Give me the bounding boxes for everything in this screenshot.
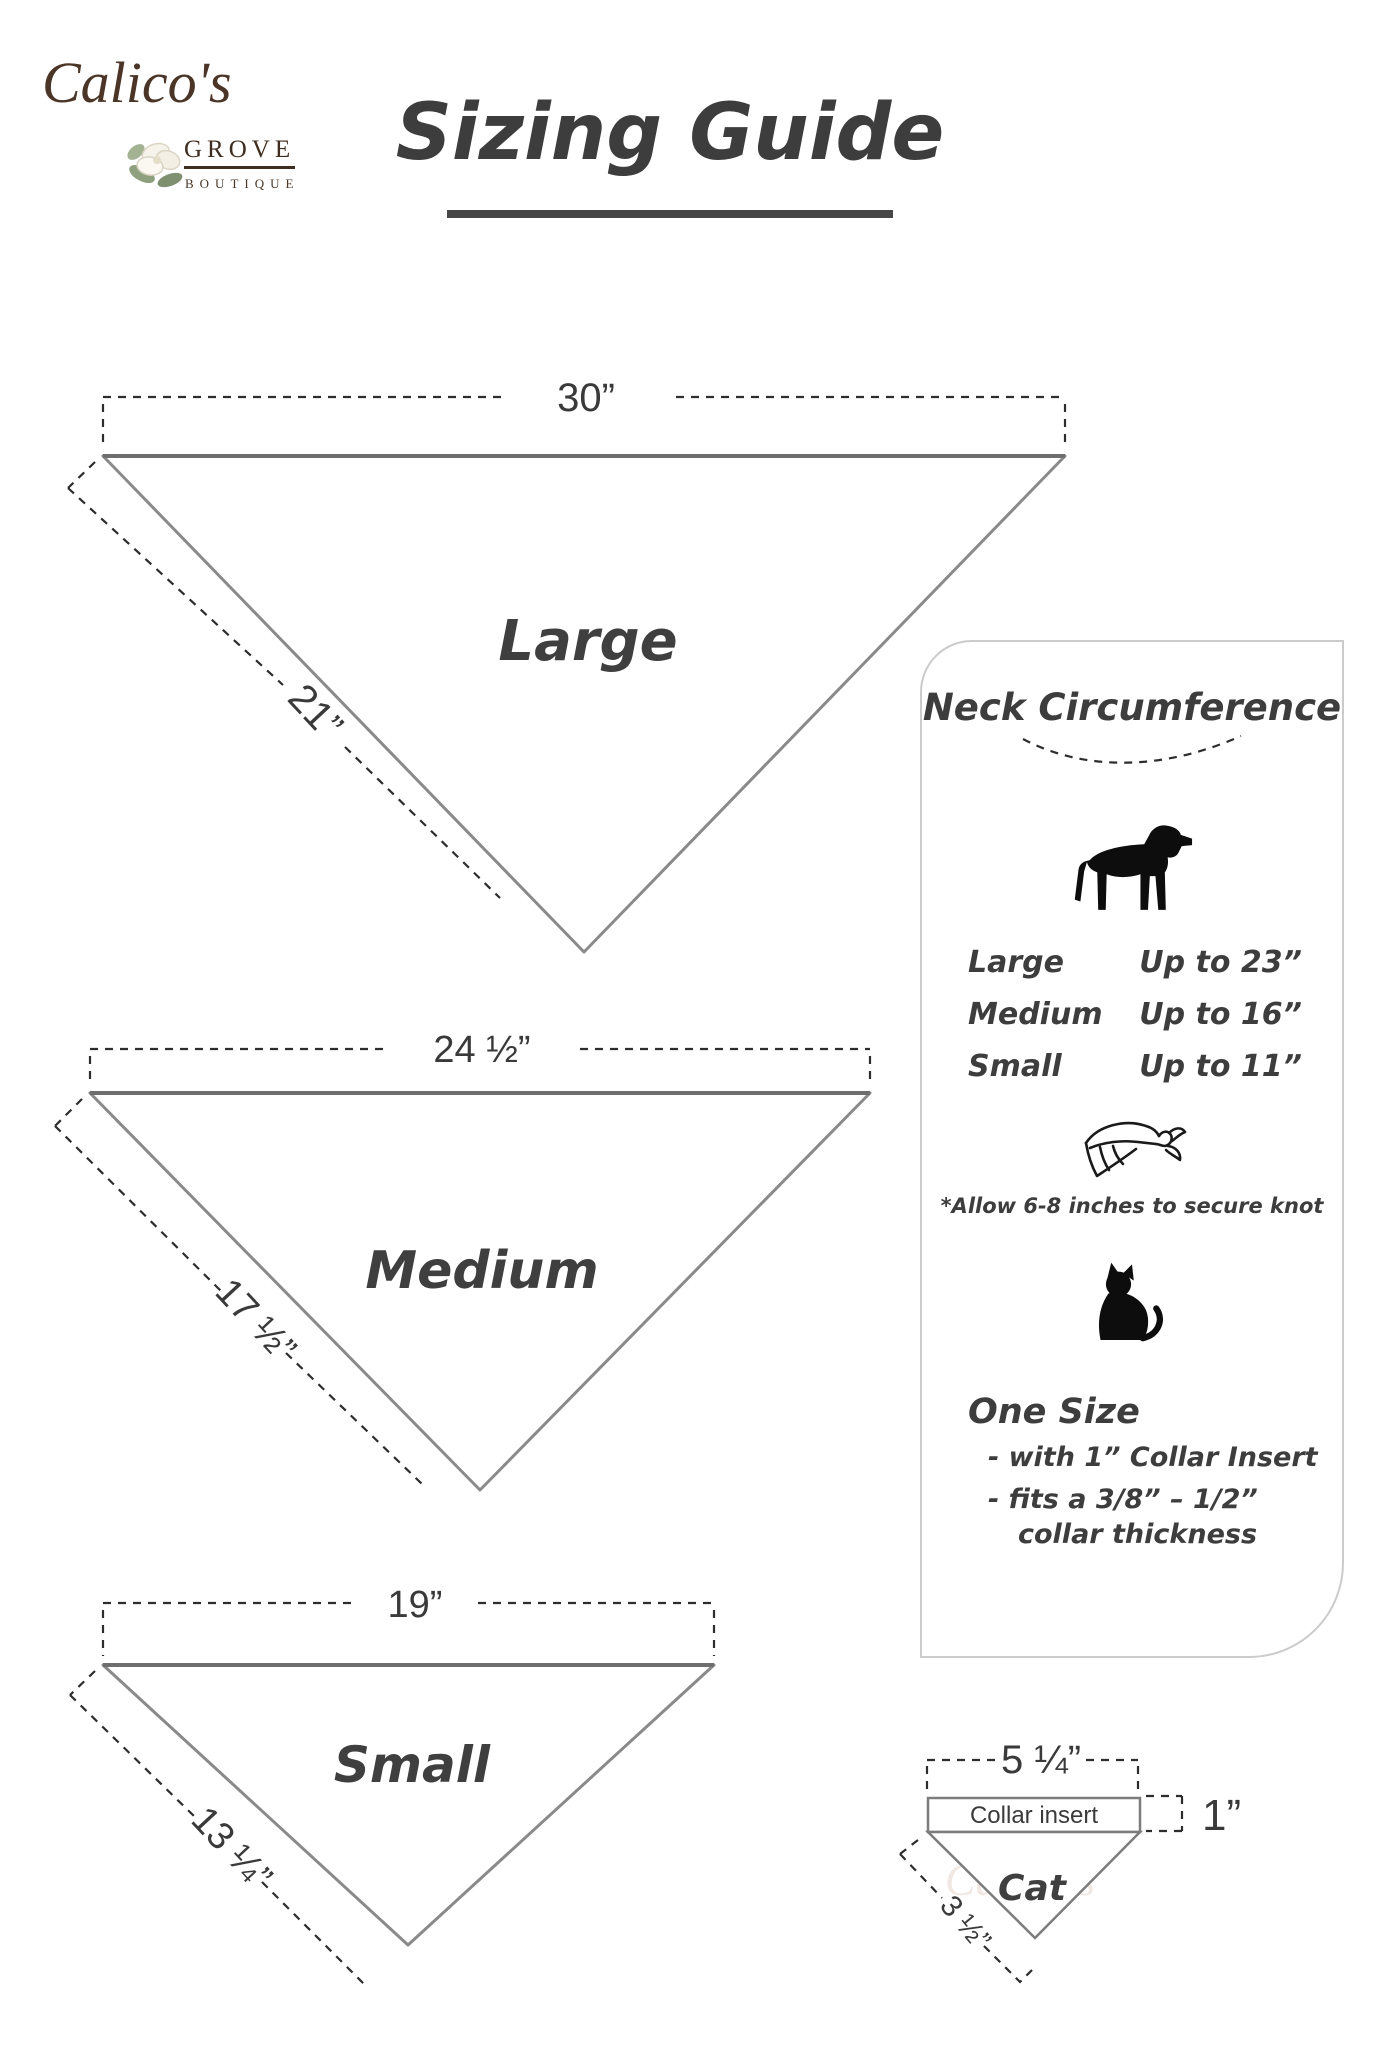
cat-size-label: Cat <box>998 1868 1068 1909</box>
side-dimension-leader <box>68 462 95 488</box>
dashed-underline-curve <box>1017 733 1247 775</box>
collar-height-label: 1” <box>1202 1791 1241 1840</box>
side-dimension-leader <box>70 1671 95 1695</box>
size-name-label: Medium <box>365 1241 598 1301</box>
side-dimension-leader <box>55 1099 82 1126</box>
side-dimension-line <box>984 1946 1032 1982</box>
size-row-value: Up to 16” <box>1139 997 1302 1032</box>
cat-bandana-diagram: Calico's 5 ¼” Collar insert 1” Cat 3 ½” <box>880 1700 1376 2045</box>
logo-wordmark: Calico's <box>42 54 232 112</box>
logo-boutique-text: BOUTIQUE <box>185 176 299 192</box>
top-width-label: 5 ¼” <box>1001 1738 1081 1782</box>
logo-grove-text: GROVE <box>184 136 295 169</box>
neck-size-table: Large Up to 23” Medium Up to 16” Small U… <box>968 945 1302 1084</box>
side-dimension-leader <box>900 1840 918 1854</box>
size-row: Small Up to 11” <box>968 1049 1302 1084</box>
size-name-label: Small <box>334 1736 491 1794</box>
size-row-value: Up to 11” <box>1139 1049 1302 1084</box>
neck-circumference-panel: Neck Circumference Large Up to 23” Mediu… <box>920 640 1344 1658</box>
height-dimension-bracket <box>1146 1796 1182 1831</box>
brand-logo: Calico's GROVE BOUTIQUE <box>42 48 342 198</box>
title-underline <box>447 210 893 218</box>
dog-icon <box>1071 815 1193 911</box>
size-row-value: Up to 23” <box>1139 945 1302 980</box>
size-row-label: Medium <box>968 997 1103 1032</box>
panel-title: Neck Circumference <box>922 686 1342 729</box>
small-bandana-diagram: Calico's GROVE BOUTIQUE 19” 13 ¼” Small <box>50 1558 750 2018</box>
size-row-label: Small <box>968 1049 1062 1084</box>
top-width-label: 24 ½” <box>433 1029 530 1071</box>
size-row: Medium Up to 16” <box>968 997 1302 1032</box>
top-width-label: 30” <box>557 376 615 420</box>
top-width-label: 19” <box>388 1584 443 1626</box>
one-size-line1: - with 1” Collar Insert <box>988 1442 1342 1474</box>
size-row: Large Up to 23” <box>968 945 1302 980</box>
side-dimension-line <box>900 1854 942 1898</box>
one-size-line3: collar thickness <box>1018 1519 1342 1550</box>
side-dimension-line <box>262 1882 366 1986</box>
size-row-label: Large <box>968 945 1064 980</box>
page-title: Sizing Guide <box>396 88 945 178</box>
collar-insert-label: Collar insert <box>970 1802 1098 1829</box>
magnolia-flower-icon <box>126 130 186 192</box>
medium-bandana-diagram: Calico's GROVE BOUTIQUE 24 ½” 17 ½” Medi… <box>30 1010 910 1534</box>
sizing-guide-page: Calico's GROVE BOUTIQUE Sizing Guide Cal… <box>0 0 1376 2060</box>
bandana-knot-icon <box>1076 1110 1188 1188</box>
one-size-line2: - fits a 3/8” – 1/2” <box>988 1484 1342 1516</box>
one-size-heading: One Size <box>968 1392 1342 1432</box>
cat-icon <box>1087 1258 1177 1350</box>
knot-allowance-note: *Allow 6-8 inches to secure knot <box>922 1194 1342 1218</box>
bandana-triangle <box>103 1665 714 1945</box>
size-name-label: Large <box>498 609 677 674</box>
